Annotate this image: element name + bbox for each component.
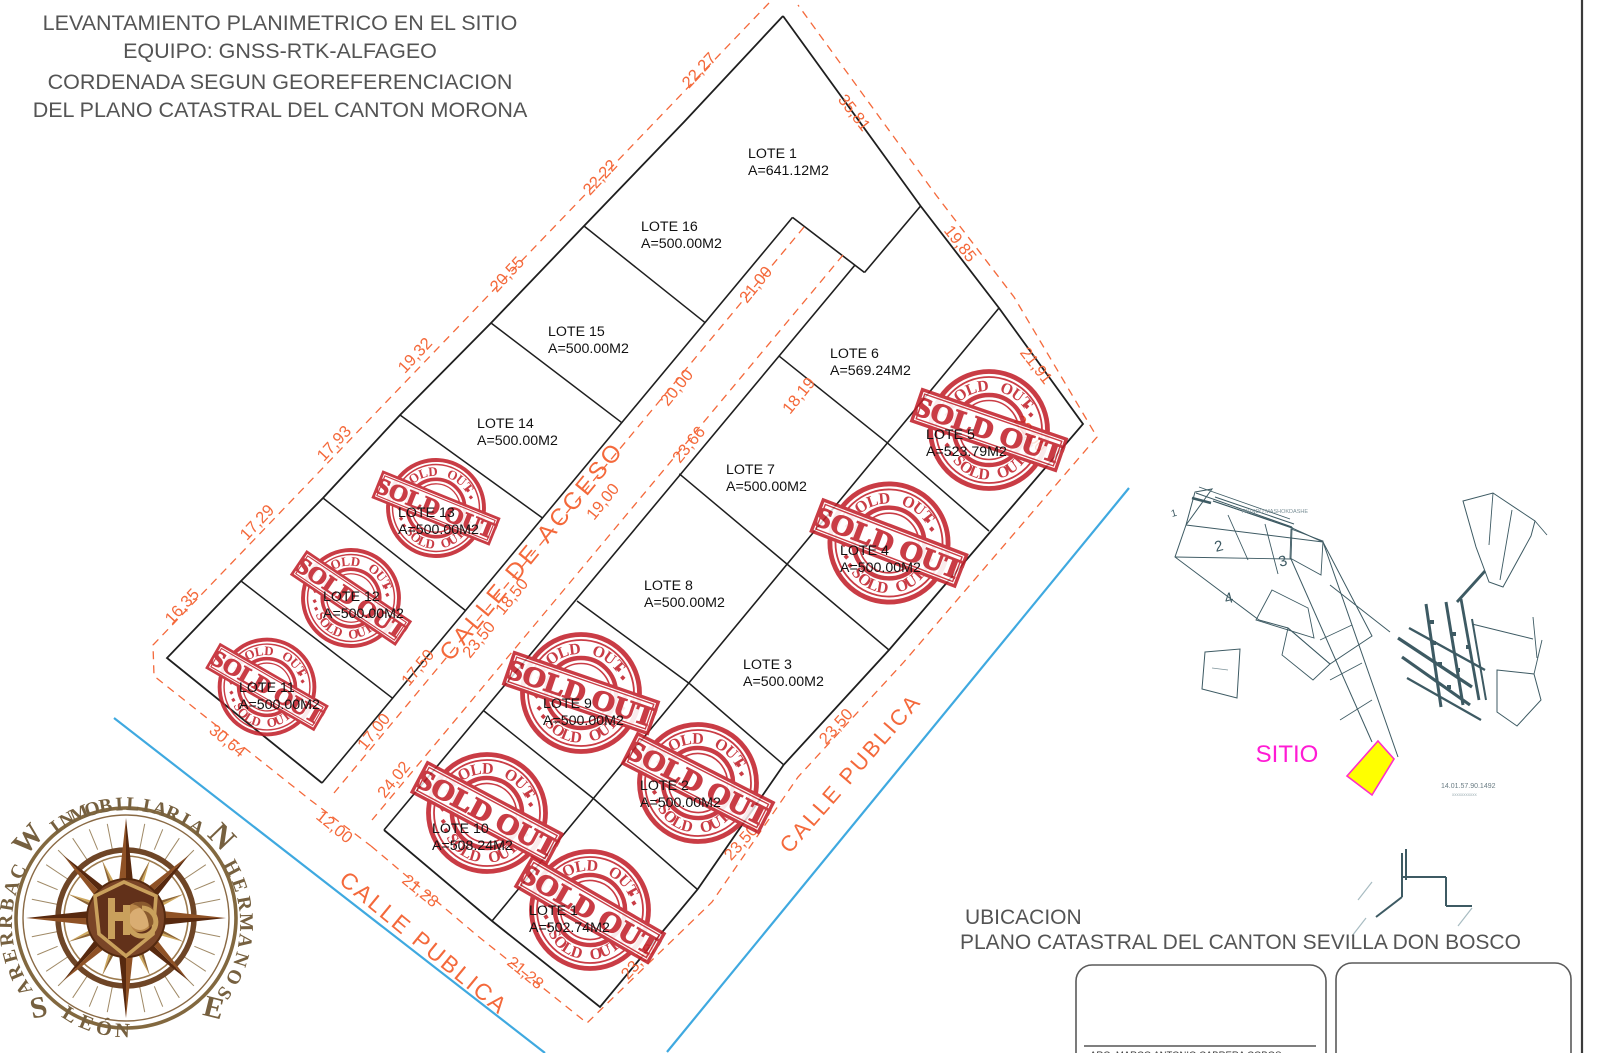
svg-text:LOTE 1: LOTE 1 (748, 146, 797, 162)
svg-text:A=500.00M2: A=500.00M2 (644, 595, 725, 611)
svg-text:I: I (115, 794, 124, 815)
svg-text:A=641.12M2: A=641.12M2 (748, 163, 829, 179)
svg-text:A=500.00M2: A=500.00M2 (726, 479, 807, 495)
svg-text:A=502.74M2: A=502.74M2 (529, 920, 610, 936)
svg-text:A=500.00M2: A=500.00M2 (477, 433, 558, 449)
svg-text:UBICACION: UBICACION (965, 906, 1082, 929)
svg-text:LOTE 8: LOTE 8 (644, 578, 693, 594)
svg-text:LOTE 14: LOTE 14 (477, 416, 534, 432)
svg-text:SITIO: SITIO (1256, 741, 1319, 768)
svg-text:PLANO CATASTRAL DEL CANTON SEV: PLANO CATASTRAL DEL CANTON SEVILLA DON B… (960, 931, 1521, 954)
svg-text:M: M (235, 913, 256, 932)
svg-text:A=500.00M2: A=500.00M2 (641, 236, 722, 252)
svg-text:DEL PLANO CATASTRAL DEL CANTON: DEL PLANO CATASTRAL DEL CANTON MORONA (33, 98, 528, 122)
svg-text:A=500.00M2: A=500.00M2 (548, 341, 629, 357)
svg-text:LOTE 10: LOTE 10 (432, 821, 489, 837)
svg-text:LOTE 2: LOTE 2 (640, 778, 689, 794)
svg-text:LOTE 3: LOTE 3 (743, 657, 792, 673)
svg-text:LOTE 12: LOTE 12 (323, 589, 380, 605)
svg-text:A=500.00M2: A=500.00M2 (743, 674, 824, 690)
svg-text:A=500.00M2: A=500.00M2 (840, 560, 921, 576)
svg-text:LOTE 15: LOTE 15 (548, 324, 605, 340)
svg-text:CORDENADA SEGUN GEOREFERENCIAC: CORDENADA SEGUN GEOREFERENCIACION (48, 70, 513, 94)
svg-text:LOTE 4: LOTE 4 (840, 543, 889, 559)
svg-text:LOTE 6: LOTE 6 (830, 346, 879, 362)
svg-text:LOTE 13: LOTE 13 (398, 505, 455, 521)
svg-text:A=523.79M2: A=523.79M2 (926, 444, 1007, 460)
svg-text:RIUNDO MASHOKDASHE: RIUNDO MASHOKDASHE (1242, 509, 1308, 515)
svg-text:A=500.00M2: A=500.00M2 (640, 795, 721, 811)
svg-text:LEVANTAMIENTO PLANIMETRICO EN: LEVANTAMIENTO PLANIMETRICO EN EL SITIO (43, 11, 518, 35)
svg-text:L: L (126, 794, 140, 816)
svg-text:A=569.24M2: A=569.24M2 (830, 363, 911, 379)
svg-text:A=508.24M2: A=508.24M2 (432, 838, 513, 854)
svg-text:14.01.57.90.1492: 14.01.57.90.1492 (1441, 783, 1496, 790)
svg-text:N: N (115, 1020, 131, 1043)
svg-text:LOTE 7: LOTE 7 (726, 462, 775, 478)
svg-text:A: A (233, 932, 256, 949)
svg-text:LOTE 9: LOTE 9 (543, 696, 592, 712)
svg-text:EQUIPO: GNSS-RTK-ALFAGEO: EQUIPO: GNSS-RTK-ALFAGEO (123, 39, 437, 63)
svg-text:R: R (0, 914, 17, 929)
svg-text:A=500.00M2: A=500.00M2 (239, 697, 320, 713)
svg-text:xxxxxxxxxxx: xxxxxxxxxxx (1452, 792, 1478, 797)
svg-text:A=500.00M2: A=500.00M2 (398, 522, 479, 538)
svg-text:LOTE 11: LOTE 11 (239, 680, 295, 696)
svg-text:A=500.00M2: A=500.00M2 (323, 606, 404, 622)
svg-text:LOTE 16: LOTE 16 (641, 219, 698, 235)
svg-text:A=500.00M2: A=500.00M2 (543, 713, 624, 729)
svg-text:LOTE 5: LOTE 5 (926, 427, 975, 443)
svg-text:LOTE 1: LOTE 1 (529, 903, 578, 919)
